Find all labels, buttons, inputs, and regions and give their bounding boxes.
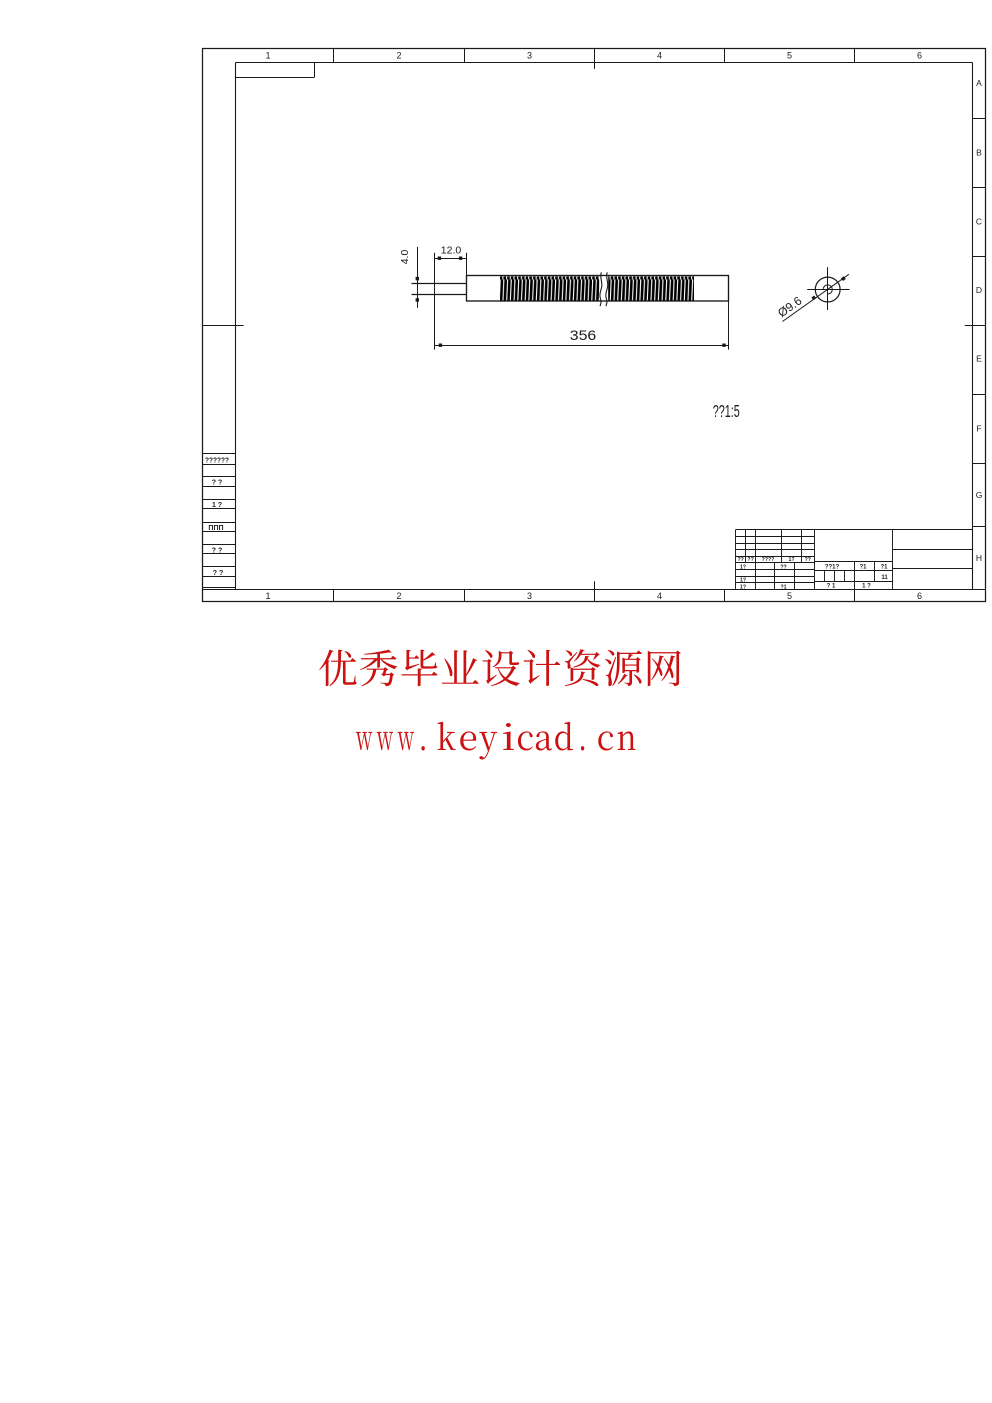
svg-text:4.0: 4.0 [399, 250, 411, 265]
svg-text:??: ?? [780, 564, 786, 570]
svg-text:?1: ?1 [859, 565, 867, 571]
svg-text:F: F [976, 424, 981, 434]
svg-text:? ?: ? ? [212, 480, 223, 487]
svg-text:?1: ?1 [880, 565, 888, 571]
svg-text:4: 4 [657, 591, 662, 601]
svg-text:1?: 1? [740, 578, 746, 584]
svg-text:? ?: ? ? [213, 570, 224, 577]
svg-text:ΠΠΠ: ΠΠΠ [208, 525, 223, 532]
svg-text:5: 5 [787, 591, 792, 601]
svg-text:C: C [976, 217, 982, 227]
svg-text:E: E [976, 354, 982, 364]
svg-text:A: A [976, 78, 982, 88]
svg-text:356: 356 [570, 328, 597, 343]
svg-text:1 ?: 1 ? [862, 584, 871, 590]
svg-text:??: ?? [805, 557, 811, 563]
svg-text:G: G [976, 490, 983, 500]
svg-text:4: 4 [657, 51, 662, 61]
svg-text:H: H [976, 553, 982, 563]
svg-text:6: 6 [917, 51, 922, 61]
svg-text:1: 1 [265, 591, 270, 601]
svg-text:11: 11 [881, 575, 888, 581]
svg-text:??????: ?????? [205, 458, 229, 465]
svg-text:1: 1 [265, 51, 270, 61]
svg-text:??1:5: ??1:5 [713, 401, 740, 421]
svg-text:1 ?: 1 ? [212, 502, 222, 509]
svg-text:D: D [976, 285, 982, 295]
svg-text:????: ???? [762, 557, 775, 563]
svg-text:??: ?? [747, 557, 753, 563]
svg-text:B: B [976, 148, 982, 158]
svg-text:1?: 1? [788, 557, 794, 563]
svg-text:??: ?? [738, 557, 744, 563]
svg-text:??1?: ??1? [825, 565, 840, 571]
svg-text:1?: 1? [740, 584, 746, 590]
svg-text:3: 3 [527, 51, 532, 61]
svg-text:2: 2 [396, 591, 401, 601]
svg-text:3: 3 [527, 591, 532, 601]
svg-text:5: 5 [787, 51, 792, 61]
svg-text:2: 2 [396, 51, 401, 61]
svg-text:? ?: ? ? [212, 547, 223, 554]
svg-text:1?: 1? [740, 564, 746, 570]
svg-text:6: 6 [917, 591, 922, 601]
svg-text:? 1: ? 1 [827, 584, 836, 590]
svg-text:12.0: 12.0 [441, 244, 462, 256]
svg-text:?1: ?1 [780, 584, 786, 590]
